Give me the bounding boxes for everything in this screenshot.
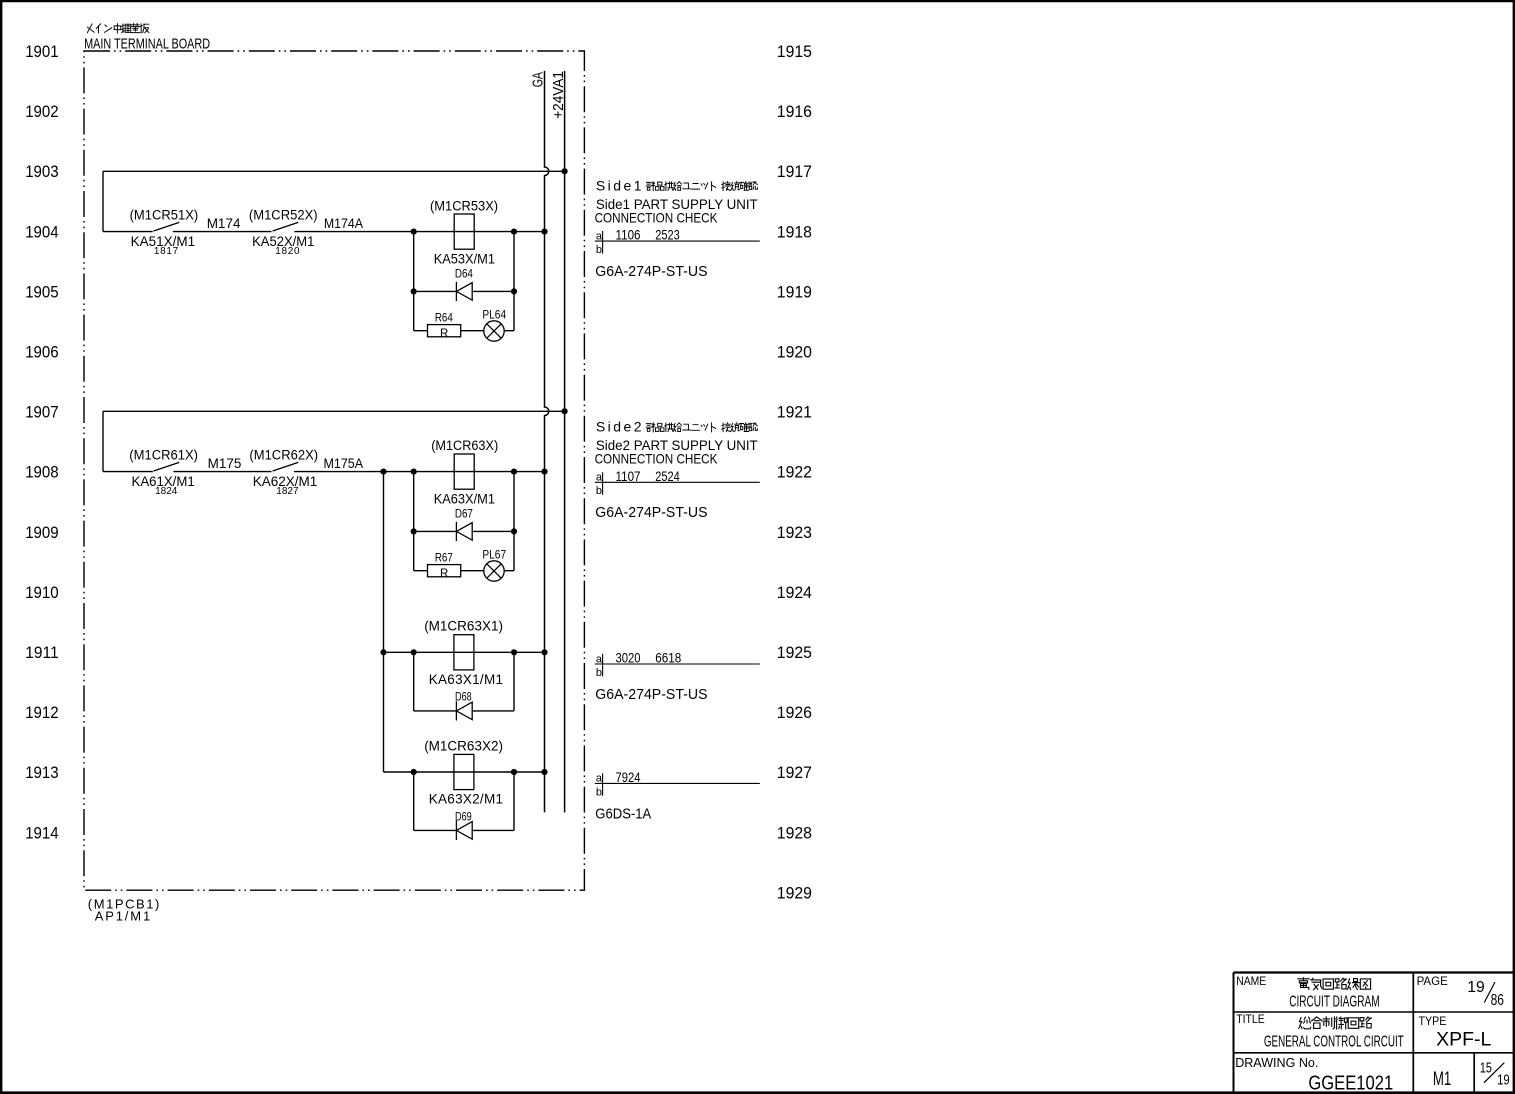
svg-text:1817: 1817	[154, 246, 179, 257]
svg-text:M175: M175	[208, 456, 242, 471]
svg-text:1913: 1913	[25, 764, 59, 782]
svg-text:b: b	[596, 485, 602, 497]
svg-text:M1: M1	[1433, 1069, 1451, 1090]
svg-text:KA63X/M1: KA63X/M1	[434, 492, 495, 507]
svg-text:PL64: PL64	[482, 309, 506, 321]
svg-text:1908: 1908	[25, 464, 59, 482]
svg-text:G6A-274P-ST-US: G6A-274P-ST-US	[595, 504, 707, 521]
svg-text:GA: GA	[530, 72, 547, 87]
svg-text:R: R	[440, 568, 448, 580]
svg-text:G6DS-1A: G6DS-1A	[595, 805, 651, 822]
svg-text:(M1CR63X1): (M1CR63X1)	[424, 619, 503, 634]
svg-text:(M1CR53X): (M1CR53X)	[430, 199, 498, 214]
svg-text:D69: D69	[455, 812, 472, 824]
svg-text:a: a	[596, 653, 603, 665]
svg-text:D68: D68	[455, 692, 472, 704]
svg-text:1901: 1901	[25, 43, 59, 61]
svg-text:TYPE: TYPE	[1419, 1014, 1447, 1028]
svg-text:KA63X2/M1: KA63X2/M1	[429, 792, 503, 807]
svg-text:(M1CR51X): (M1CR51X)	[130, 207, 199, 222]
svg-text:Side1: Side1	[596, 178, 642, 194]
svg-text:a: a	[596, 773, 603, 785]
svg-text:NAME: NAME	[1236, 974, 1266, 988]
svg-text:+24VA1: +24VA1	[550, 71, 567, 119]
svg-text:G6A-274P-ST-US: G6A-274P-ST-US	[595, 263, 707, 280]
svg-text:3020: 3020	[616, 651, 641, 666]
svg-text:1925: 1925	[777, 644, 812, 662]
svg-text:R67: R67	[435, 553, 453, 565]
svg-text:R: R	[440, 328, 448, 340]
svg-text:a: a	[596, 230, 603, 242]
svg-text:1914: 1914	[25, 824, 59, 842]
svg-text:(M1CR52X): (M1CR52X)	[249, 207, 318, 222]
svg-text:1916: 1916	[777, 103, 812, 121]
svg-text:b: b	[596, 667, 602, 679]
svg-text:86: 86	[1491, 992, 1504, 1009]
svg-text:(M1CR61X): (M1CR61X)	[129, 447, 198, 462]
svg-text:1917: 1917	[777, 163, 812, 181]
svg-text:1919: 1919	[777, 283, 812, 301]
svg-text:GGEE1021: GGEE1021	[1308, 1072, 1393, 1094]
svg-text:1927: 1927	[777, 764, 812, 782]
svg-text:(M1CR62X): (M1CR62X)	[249, 447, 318, 462]
svg-text:KA53X/M1: KA53X/M1	[434, 252, 495, 267]
svg-text:CONNECTION CHECK: CONNECTION CHECK	[595, 451, 718, 467]
svg-text:KA63X1/M1: KA63X1/M1	[429, 672, 503, 687]
svg-text:1924: 1924	[777, 584, 812, 602]
svg-text:1827: 1827	[276, 486, 299, 497]
svg-text:1904: 1904	[25, 223, 59, 241]
svg-text:1905: 1905	[25, 283, 59, 301]
svg-text:1915: 1915	[777, 43, 812, 61]
svg-text:XPF-L: XPF-L	[1436, 1029, 1491, 1051]
svg-text:1907: 1907	[25, 404, 59, 422]
svg-text:1824: 1824	[155, 486, 178, 497]
svg-text:R64: R64	[435, 313, 453, 325]
svg-text:Side2: Side2	[596, 419, 642, 435]
svg-text:CONNECTION CHECK: CONNECTION CHECK	[595, 209, 718, 225]
svg-text:1902: 1902	[25, 103, 59, 121]
svg-text:b: b	[596, 786, 602, 798]
svg-text:M174: M174	[207, 216, 241, 231]
svg-text:1903: 1903	[25, 163, 59, 181]
svg-text:TITLE: TITLE	[1236, 1012, 1265, 1026]
svg-text:1923: 1923	[777, 524, 812, 542]
svg-text:MAIN TERMINAL BOARD: MAIN TERMINAL BOARD	[84, 36, 210, 52]
svg-text:G6A-274P-ST-US: G6A-274P-ST-US	[595, 686, 707, 703]
svg-text:a: a	[596, 472, 603, 484]
svg-text:PAGE: PAGE	[1417, 974, 1448, 988]
svg-text:15: 15	[1480, 1060, 1492, 1077]
svg-text:1909: 1909	[25, 524, 59, 542]
svg-text:2524: 2524	[655, 469, 680, 484]
svg-text:b: b	[596, 244, 602, 256]
svg-text:2523: 2523	[655, 228, 680, 243]
svg-text:1921: 1921	[777, 404, 812, 422]
svg-text:D64: D64	[455, 269, 474, 281]
svg-text:M174A: M174A	[324, 216, 363, 231]
svg-text:1106: 1106	[616, 228, 641, 243]
svg-text:1929: 1929	[777, 884, 812, 902]
svg-text:1928: 1928	[777, 824, 812, 842]
svg-text:(M1CR63X2): (M1CR63X2)	[424, 739, 503, 754]
svg-text:GENERAL CONTROL CIRCUIT: GENERAL CONTROL CIRCUIT	[1264, 1034, 1404, 1051]
svg-text:DRAWING No.: DRAWING No.	[1235, 1055, 1318, 1070]
svg-text:1918: 1918	[777, 223, 812, 241]
svg-text:1911: 1911	[25, 644, 59, 662]
svg-text:19: 19	[1497, 1072, 1510, 1089]
svg-text:D67: D67	[455, 509, 473, 521]
svg-text:1920: 1920	[777, 344, 812, 362]
svg-text:1820: 1820	[275, 246, 300, 257]
svg-text:M175A: M175A	[324, 456, 364, 471]
svg-text:7924: 7924	[616, 770, 641, 785]
svg-text:PL67: PL67	[482, 549, 506, 561]
svg-text:1926: 1926	[777, 704, 812, 722]
svg-text:1912: 1912	[25, 704, 59, 722]
svg-text:1906: 1906	[25, 344, 59, 362]
svg-text:(M1CR63X): (M1CR63X)	[431, 438, 498, 453]
svg-text:19: 19	[1467, 979, 1485, 996]
svg-text:1910: 1910	[25, 584, 59, 602]
svg-text:6618: 6618	[655, 651, 681, 666]
svg-text:1107: 1107	[616, 469, 641, 484]
svg-text:CIRCUIT DIAGRAM: CIRCUIT DIAGRAM	[1289, 994, 1379, 1011]
svg-text:1922: 1922	[777, 464, 812, 482]
